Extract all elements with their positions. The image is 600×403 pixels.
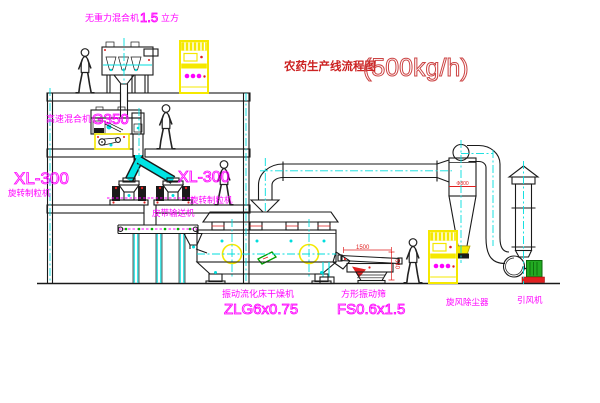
dryer-base-trough bbox=[197, 262, 336, 274]
fan-label: 引风机 bbox=[517, 295, 543, 305]
mixer-side-port bbox=[144, 49, 158, 56]
screen-model: FS0.6x1.5 bbox=[337, 301, 405, 318]
worker-second-floor bbox=[157, 105, 176, 149]
fan-base bbox=[522, 277, 545, 283]
third-floor-slab-left bbox=[47, 205, 144, 213]
discharge-through-slab bbox=[133, 134, 143, 157]
outlet-piping bbox=[467, 146, 509, 264]
labels: 无重力混合机 1.5 立方 农药生产线流程图 (500kg/h) 高速混合机 G… bbox=[8, 10, 543, 318]
gravity-free-mixer bbox=[102, 42, 158, 117]
second-floor-slab-left bbox=[47, 149, 133, 157]
screen-height-dim: 540 bbox=[394, 259, 400, 270]
belt-conveyor-label: 皮带输送机 bbox=[152, 208, 195, 218]
drive-guard-highlight bbox=[95, 134, 129, 149]
rotary-granulator-left bbox=[107, 181, 151, 205]
fan-scroll bbox=[504, 256, 525, 277]
control-cabinet-roof bbox=[180, 41, 208, 93]
induced-draft-fan bbox=[504, 256, 545, 283]
diagram-capacity: (500kg/h) bbox=[363, 54, 469, 82]
dryer-label: 振动流化床干燥机 bbox=[222, 288, 294, 299]
control-cabinet-ground bbox=[429, 231, 457, 283]
process-flow-diagram: 无重力混合机 1.5 立方 农药生产线流程图 (500kg/h) 高速混合机 G… bbox=[0, 0, 600, 403]
dryer-model: ZLG6x0.75 bbox=[224, 301, 298, 318]
hood-stacks bbox=[212, 222, 331, 230]
screen-label: 方形振动筛 bbox=[341, 288, 386, 299]
gravity-mixer-unit: 立方 bbox=[161, 12, 179, 23]
screen-deck bbox=[341, 256, 399, 264]
belt-conveyor bbox=[118, 225, 207, 284]
screen-length-dim: 1500 bbox=[356, 245, 370, 251]
roof-slab-right bbox=[128, 93, 251, 101]
granulator-center-model: XL-300 bbox=[178, 169, 230, 186]
granulator-left-model: XL-300 bbox=[14, 169, 69, 188]
fan-motor bbox=[527, 261, 543, 278]
roof-slab-left bbox=[47, 93, 121, 101]
support-columns bbox=[133, 234, 185, 284]
high-speed-mixer-model: G350 bbox=[92, 111, 129, 128]
cyclone-body bbox=[449, 158, 476, 196]
vibrating-screen bbox=[338, 247, 402, 283]
fluid-bed-dryer bbox=[197, 200, 350, 284]
conveyor-discharge-funnel bbox=[184, 234, 207, 254]
cyclone-label: 旋风除尘器 bbox=[446, 297, 489, 307]
cyclone-diameter-dim: Φ800 bbox=[456, 181, 469, 187]
second-floor-slab-right bbox=[145, 149, 250, 157]
gravity-mixer-capacity: 1.5 bbox=[140, 10, 158, 25]
granulator-center-name: 旋转制粒机 bbox=[190, 195, 233, 205]
exhaust-duct bbox=[259, 161, 438, 201]
worker-ground bbox=[404, 239, 423, 283]
gravity-mixer-label: 无重力混合机 bbox=[85, 12, 139, 23]
dryer-feet bbox=[206, 271, 331, 284]
high-speed-mixer-label: 高速混合机 bbox=[46, 113, 91, 124]
drawing-canvas: 无重力混合机 1.5 立方 农药生产线流程图 (500kg/h) 高速混合机 G… bbox=[0, 0, 600, 403]
worker-roof bbox=[76, 49, 95, 93]
y-distribution-pipe bbox=[123, 155, 179, 182]
granulator-left-name: 旋转制粒机 bbox=[8, 188, 51, 198]
